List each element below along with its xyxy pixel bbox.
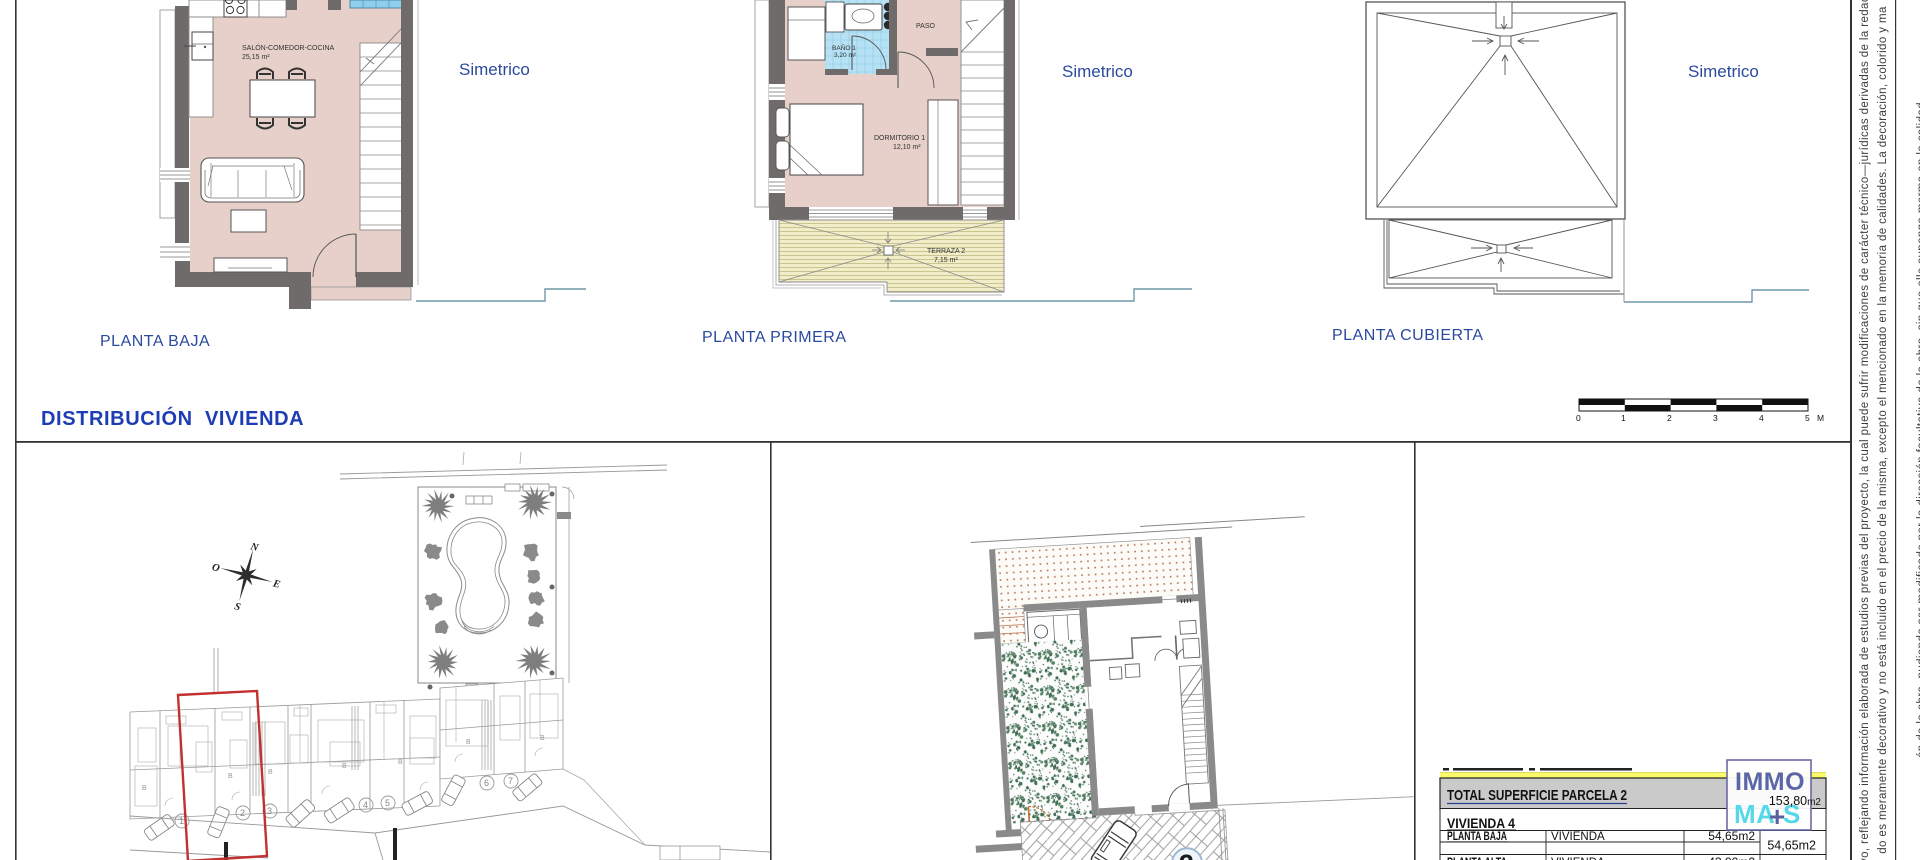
svg-text:B: B — [268, 769, 273, 776]
svg-text:7: 7 — [508, 776, 513, 786]
svg-text:12,10 m²: 12,10 m² — [893, 144, 921, 151]
svg-text:E: E — [271, 578, 282, 591]
svg-text:PLANTA CUBIERTA: PLANTA CUBIERTA — [1332, 327, 1484, 344]
svg-text:TERRAZA 2: TERRAZA 2 — [927, 248, 965, 255]
svg-text:vo, reflejando información ela: vo, reflejando información elaborada de … — [1859, 0, 1871, 860]
svg-text:PLANTA BAJA: PLANTA BAJA — [1447, 831, 1507, 843]
svg-text:5: 5 — [385, 798, 390, 808]
svg-text:4: 4 — [363, 800, 368, 810]
svg-text:Simetrico: Simetrico — [459, 60, 530, 79]
svg-text:SALÓN-COMEDOR-COCINA: SALÓN-COMEDOR-COCINA — [242, 43, 335, 52]
svg-text:PASO: PASO — [916, 23, 935, 30]
svg-text:B: B — [142, 785, 147, 792]
svg-text:4: 4 — [1759, 413, 1764, 423]
svg-text:1: 1 — [1621, 413, 1626, 423]
svg-text:BAÑO 1: BAÑO 1 — [832, 43, 856, 52]
svg-text:PLANTA PRIMERA: PLANTA PRIMERA — [702, 329, 847, 346]
svg-text:TOTAL SUPERFICIE PARCELA 2: TOTAL SUPERFICIE PARCELA 2 — [1447, 787, 1627, 804]
svg-text:54,65m2: 54,65m2 — [1767, 839, 1816, 853]
svg-text:IMMO: IMMO — [1735, 768, 1805, 796]
svg-text:PLANTA BAJA: PLANTA BAJA — [100, 333, 210, 350]
svg-text:do es meramente decorativo y n: do es meramente decorativo y no está inc… — [1877, 6, 1889, 854]
svg-text:DISTRIBUCIÓN VIVIENDA: DISTRIBUCIÓN VIVIENDA — [41, 406, 304, 430]
svg-text:VIVIENDA: VIVIENDA — [1551, 831, 1605, 843]
svg-text:6: 6 — [484, 778, 489, 788]
svg-text:O: O — [211, 562, 222, 575]
svg-text:B: B — [398, 759, 403, 766]
svg-text:B: B — [342, 763, 347, 770]
svg-text:54,65m2: 54,65m2 — [1708, 829, 1755, 843]
svg-text:2: 2 — [1667, 413, 1672, 423]
svg-text:N: N — [248, 541, 260, 554]
svg-text:2: 2 — [1178, 849, 1195, 860]
svg-text:3: 3 — [267, 806, 272, 816]
svg-text:S: S — [233, 601, 242, 613]
svg-text:7,15 m²: 7,15 m² — [934, 257, 958, 264]
svg-text:Simetrico: Simetrico — [1688, 62, 1759, 81]
svg-text:Simetrico: Simetrico — [1062, 62, 1133, 81]
svg-text:ón de la obra, pudiendo ser mo: ón de la obra, pudiendo ser modificado p… — [1916, 102, 1920, 758]
svg-text:DORMITORIO 1: DORMITORIO 1 — [874, 135, 925, 142]
svg-text:3,20 m²: 3,20 m² — [834, 52, 857, 59]
svg-text:B: B — [540, 735, 545, 742]
svg-text:2: 2 — [240, 808, 245, 818]
svg-text:25,15 m²: 25,15 m² — [242, 54, 270, 61]
svg-text:VIVIENDA 4: VIVIENDA 4 — [1447, 816, 1515, 831]
svg-text:M: M — [1817, 413, 1824, 423]
svg-text:B: B — [466, 739, 471, 746]
svg-text:1: 1 — [179, 816, 184, 826]
svg-text:0: 0 — [1576, 413, 1581, 423]
svg-text:5: 5 — [1805, 413, 1810, 423]
svg-text:43,90m2: 43,90m2 — [1708, 855, 1755, 860]
svg-text:B: B — [228, 773, 233, 780]
svg-text:153,80m2: 153,80m2 — [1769, 794, 1822, 808]
svg-text:3: 3 — [1713, 413, 1718, 423]
